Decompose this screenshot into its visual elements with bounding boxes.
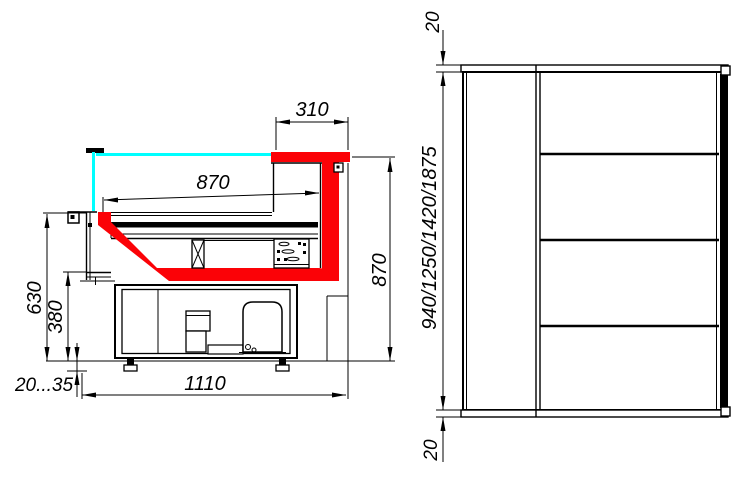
- vent-bolt-2: [303, 243, 306, 246]
- foot-pad: [124, 365, 137, 371]
- vent-bolt-1: [298, 242, 301, 245]
- dim-bottom-cap-label: 20: [421, 439, 442, 462]
- red-canopy-bar: [271, 152, 350, 162]
- drain-tray: [208, 345, 243, 354]
- dim-380-label: 380: [45, 300, 67, 333]
- adjustable-foot-right: [276, 358, 289, 371]
- arrowhead: [441, 72, 446, 86]
- dim-870-back-label: 870: [369, 253, 391, 286]
- top-corner-fitting: [721, 66, 730, 75]
- dim-line-870-top: [104, 193, 319, 200]
- electrical-box-lower: [186, 331, 206, 352]
- top-cap-strip: [461, 65, 728, 72]
- arrowhead: [388, 158, 393, 172]
- dim-feet-label: 20...35: [14, 375, 74, 396]
- foot-pad: [276, 365, 289, 371]
- dim-heights-label: 940/1250/1420/1875: [419, 145, 441, 329]
- dim-top-cap-label: 20: [423, 11, 444, 34]
- vent-panel: [274, 239, 309, 268]
- vent-bolt-3: [277, 250, 280, 253]
- arrowhead: [82, 393, 96, 398]
- arrowhead: [388, 347, 393, 361]
- arrowhead: [305, 191, 319, 196]
- dim-310-label: 310: [295, 99, 328, 121]
- vent-bolt-6: [284, 258, 287, 261]
- technical-drawing-sheet: 310 870 630 380 20...35: [0, 0, 745, 484]
- section-view: 310 870 630 380 20...35: [14, 99, 395, 399]
- arrowhead: [66, 347, 71, 361]
- cabinet-body: [461, 65, 730, 417]
- arrowhead: [104, 198, 118, 203]
- bottom-cap-strip: [461, 410, 728, 417]
- arrowhead: [45, 347, 50, 361]
- well-components: [192, 239, 309, 268]
- canopy-bracket-bolt: [337, 166, 340, 169]
- arrowhead: [332, 393, 346, 398]
- front-bumper-insert: [71, 215, 75, 219]
- arrowhead: [441, 417, 446, 431]
- dim-630-label: 630: [24, 281, 46, 314]
- dim-1110-label: 1110: [184, 373, 226, 395]
- adjustable-foot-left: [124, 358, 137, 371]
- front-view: 20 940/1250/1420/1875 20: [419, 11, 730, 462]
- vent-bolt-5: [277, 258, 280, 261]
- glass-end-seal-bar: [720, 74, 727, 408]
- arrowhead: [334, 120, 348, 125]
- bottom-corner-fitting: [721, 407, 730, 416]
- deck-worktop-band: [111, 222, 318, 228]
- dim-870-top-label: 870: [196, 172, 229, 194]
- front-panel-bolt: [88, 223, 92, 227]
- vent-bolt-4: [303, 251, 306, 254]
- arrowhead: [75, 371, 80, 385]
- arrowhead: [441, 51, 446, 65]
- electrical-box: [186, 311, 210, 331]
- arrowhead: [276, 120, 290, 125]
- front-view-dimensions: 20 940/1250/1420/1875 20: [419, 11, 463, 462]
- arrowhead: [75, 347, 80, 361]
- dimension-drawing: 310 870 630 380 20...35: [0, 0, 745, 484]
- machinery-base: [115, 285, 297, 371]
- red-back-wall: [322, 161, 339, 281]
- arrowhead: [45, 214, 50, 228]
- arrowhead: [66, 272, 71, 286]
- arrowhead: [441, 396, 446, 410]
